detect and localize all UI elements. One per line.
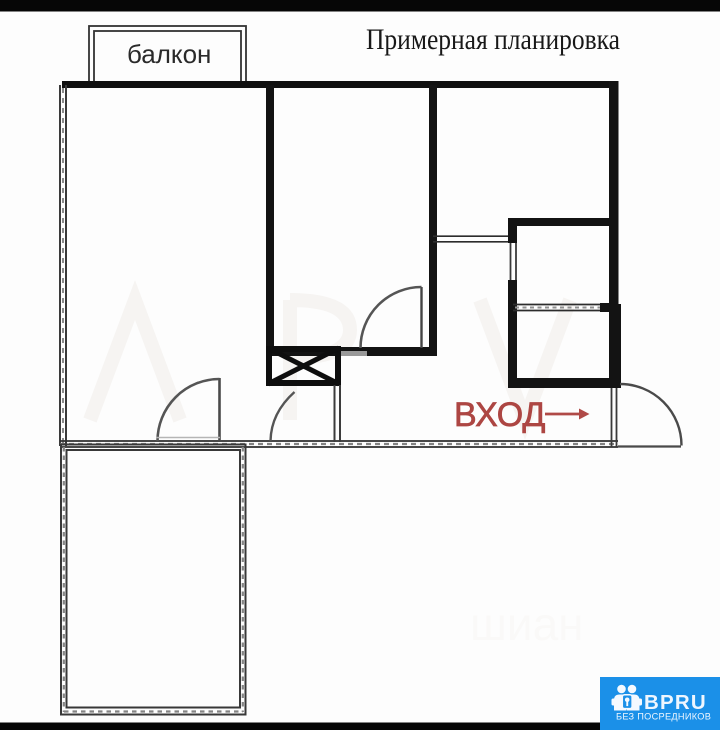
svg-text:шиан: шиан	[470, 598, 584, 650]
svg-text:Примерная планировка: Примерная планировка	[366, 23, 620, 56]
svg-text:ВХОД: ВХОД	[454, 396, 545, 434]
svg-text:БЕЗ ПОСРЕДНИКОВ: БЕЗ ПОСРЕДНИКОВ	[616, 712, 711, 722]
svg-text:балкон: балкон	[127, 39, 211, 69]
